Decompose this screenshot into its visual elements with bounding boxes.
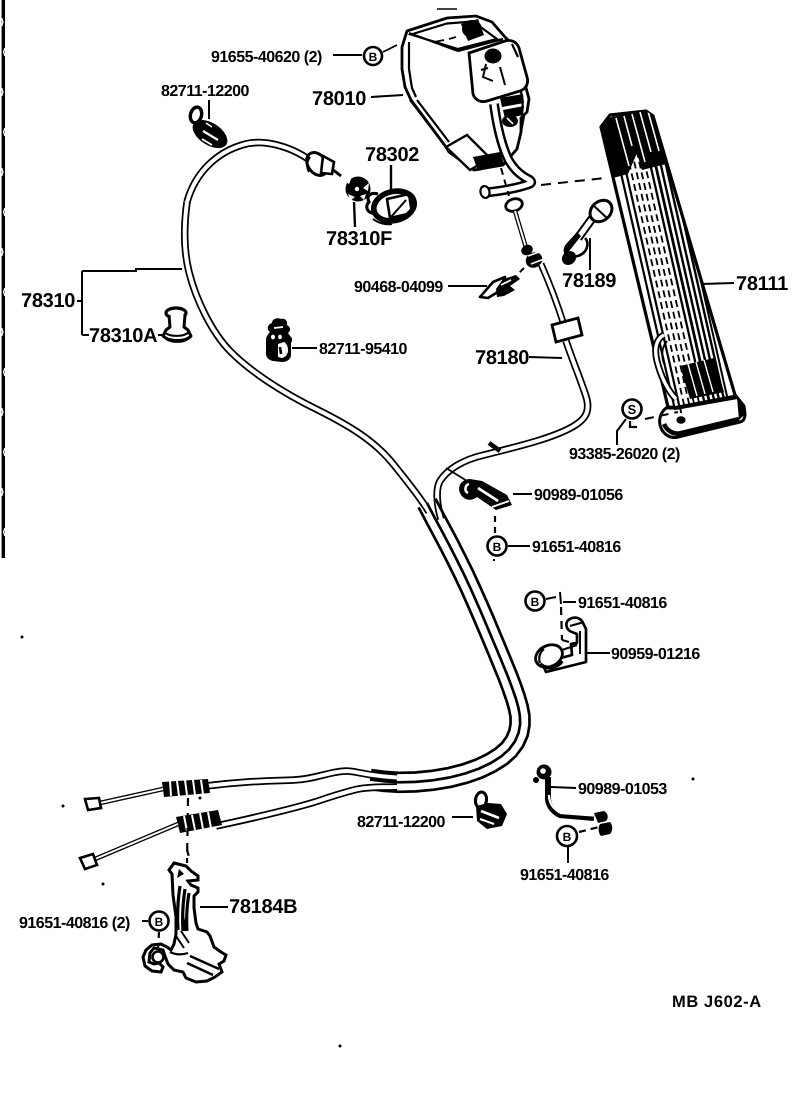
svg-text:91651-40816: 91651-40816	[532, 539, 621, 556]
svg-text:93385-26020 (2): 93385-26020 (2)	[569, 446, 680, 463]
svg-text:78310F: 78310F	[326, 228, 392, 250]
svg-text:78189: 78189	[562, 270, 616, 292]
svg-text:91651-40816: 91651-40816	[578, 595, 667, 612]
svg-text:82711-12200: 82711-12200	[357, 814, 446, 831]
svg-text:78302: 78302	[365, 144, 419, 166]
svg-text:90468-04099: 90468-04099	[354, 279, 443, 296]
svg-text:78010: 78010	[312, 88, 366, 110]
svg-text:90959-01216: 90959-01216	[611, 646, 700, 663]
svg-text:B: B	[155, 915, 164, 929]
svg-text:S: S	[628, 402, 637, 417]
svg-text:B: B	[369, 50, 378, 64]
svg-text:90989-01056: 90989-01056	[534, 487, 623, 504]
svg-text:78180: 78180	[475, 347, 529, 369]
svg-text:91651-40816 (2): 91651-40816 (2)	[19, 915, 130, 932]
svg-text:78111: 78111	[736, 273, 788, 295]
svg-text:82711-95410: 82711-95410	[319, 341, 408, 358]
svg-text:90989-01053: 90989-01053	[578, 781, 667, 798]
svg-text:B: B	[563, 830, 572, 844]
svg-text:91655-40620 (2): 91655-40620 (2)	[211, 49, 322, 66]
svg-text:B: B	[493, 540, 502, 554]
svg-text:78310A: 78310A	[89, 325, 157, 347]
svg-text:78310: 78310	[21, 290, 75, 312]
svg-text:78184B: 78184B	[229, 896, 297, 918]
svg-text:91651-40816: 91651-40816	[520, 867, 609, 884]
svg-text:82711-12200: 82711-12200	[161, 83, 250, 100]
svg-text:B: B	[531, 595, 540, 609]
svg-text:MB J602-A: MB J602-A	[672, 993, 762, 1011]
